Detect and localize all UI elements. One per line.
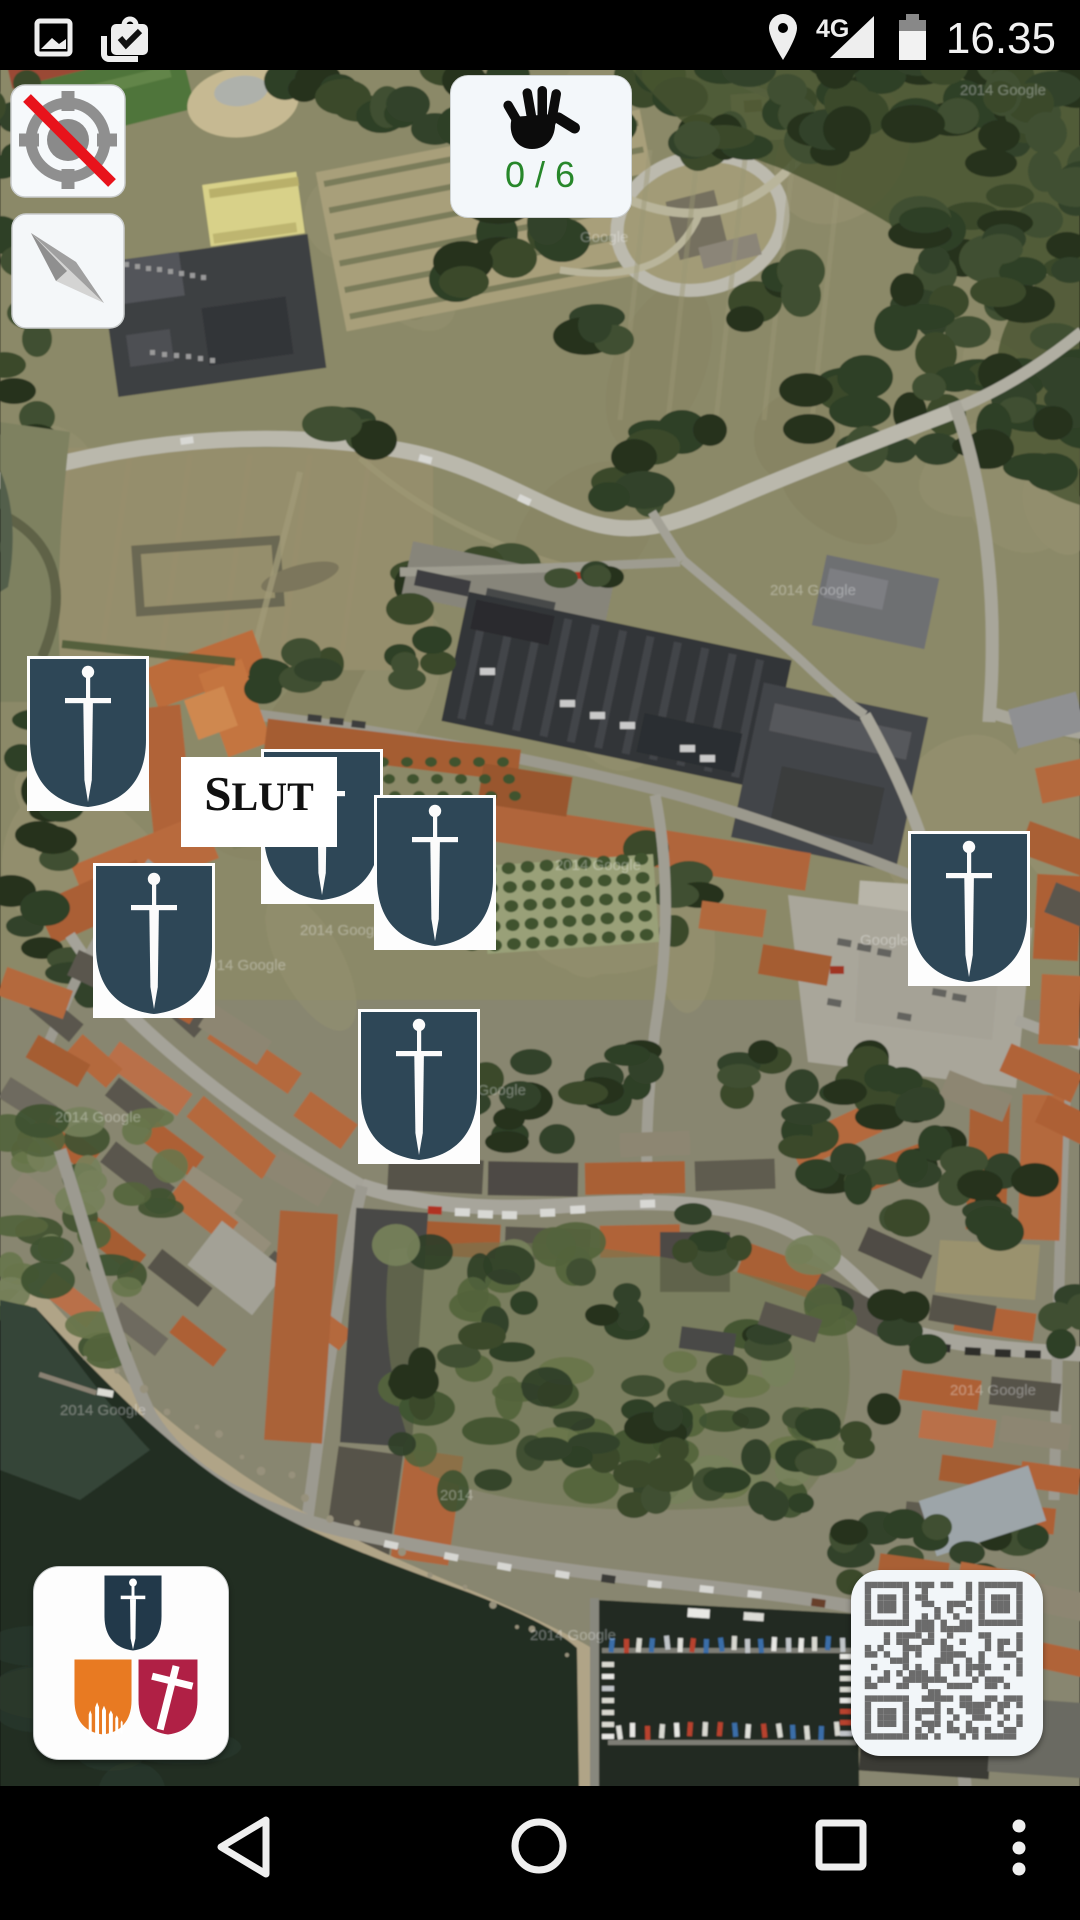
svg-text:Google: Google [580,229,628,246]
svg-text:Google: Google [860,932,908,949]
svg-text:2014 Google: 2014 Google [770,582,856,599]
svg-text:2014 Google: 2014 Google [530,1627,616,1644]
svg-text:2014 Google: 2014 Google [555,857,641,874]
svg-text:2014 Google: 2014 Google [960,82,1046,99]
svg-text:2014 Google: 2014 Google [55,1109,141,1126]
svg-text:2014: 2014 [440,1487,473,1504]
svg-text:4G: 4G [816,15,849,43]
svg-text:16.35: 16.35 [946,14,1056,63]
svg-text:2014 Google: 2014 Google [60,1402,146,1419]
svg-text:2014 Google: 2014 Google [950,1382,1036,1399]
svg-text:0 / 6: 0 / 6 [505,154,575,195]
